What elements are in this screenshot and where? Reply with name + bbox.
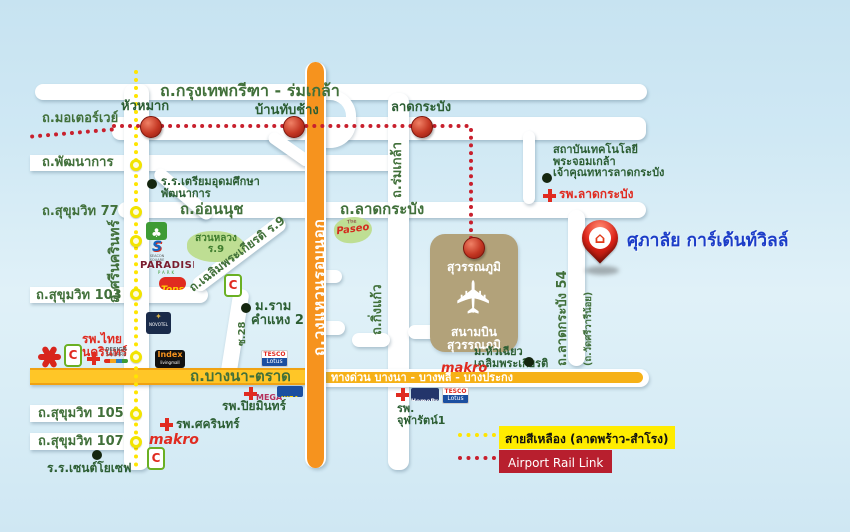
arl-route-west (30, 127, 114, 138)
tesco-lotus-logo: TESCO Lotus (261, 350, 288, 367)
road-label-srinakarin: ถ.ศรีนครินทร์ (108, 208, 123, 303)
ikea-logo: IKEA (277, 386, 303, 397)
kmitl-dot (542, 173, 552, 183)
paseo-logo: The Paseo (333, 217, 373, 237)
chularat-line1: รพ. (397, 403, 445, 415)
project-title: ศุภาลัย การ์เด้นท์วิลล์ (627, 232, 788, 250)
station-label-ban-thap-chang: บ้านทับช้าง (255, 104, 319, 118)
yellow-line-stop (130, 408, 142, 420)
novotel-logo: ✦ NOVOTEL (146, 312, 171, 334)
paradise-sub: PARK (140, 271, 194, 275)
road-label-motorway: ถ.มอเตอร์เวย์ (42, 112, 118, 126)
road-label-lat-krabang: ถ.ลาดกระบัง (340, 202, 424, 218)
hospital-cross-icon (87, 352, 100, 365)
road-outer-ring: ถ.วงแหวนรอบนอก (305, 62, 326, 468)
road-label-soi-28: ซ.28 (238, 312, 249, 346)
triam-udom-dot (147, 179, 157, 189)
yellow-line-stop (130, 206, 142, 218)
location-map: สวนหลวง ร.9 The Paseo ถ.วงแหวนรอบนอก สุว… (0, 0, 850, 532)
yellow-line-stop (130, 288, 142, 300)
design-square-logo: DESIGN SQUARE (101, 347, 131, 365)
tree-mall-logo: ♣ (146, 222, 167, 240)
kmitl-line1: สถาบันเทคโนโลยี (553, 144, 664, 156)
paseo-mall-area: The Paseo (332, 214, 373, 245)
legend-yellow-line-label: สายสีเหลือง (ลาดพร้าว-สำโรง) (505, 432, 669, 446)
road-label-wat-sri-wari-noi: (ถ.วัดศรีวารีน้อย) (584, 270, 594, 366)
legend-yellow-line: สายสีเหลือง (ลาดพร้าว-สำโรง) (499, 426, 675, 449)
chularat-line2: จุฬารัตน์1 (397, 415, 445, 427)
yellow-line-stop (130, 436, 142, 448)
road-label-king-kaew: ถ.กิ่งแก้ว (371, 247, 385, 335)
chularat-hospital-cross-icon (396, 388, 409, 401)
lat-krabang-hospital-cross-icon (543, 189, 556, 202)
road-stub-c (352, 333, 390, 347)
ramkhamhaeng2-line1: ม.ราม (255, 300, 304, 314)
thai-nakarin-line1: รพ.ไทย (82, 333, 127, 346)
yellow-line-stop (130, 351, 142, 363)
suanluang-label: สวนหลวง (187, 234, 245, 245)
bigc-logo: C (147, 447, 165, 470)
homepro-logo: HomePro (411, 388, 439, 401)
ramkhamhaeng2-dot (241, 303, 251, 313)
bigc-logo: C (64, 344, 82, 367)
ramkhamhaeng2-line2: คำแหง 2 (251, 314, 304, 328)
station-lat-krabang (411, 116, 433, 138)
st-joseph-dot (92, 450, 102, 460)
road-label-sukhumvit-107: ถ.สุขุมวิท 107 (38, 435, 124, 449)
tesco-label: TESCO (443, 388, 468, 395)
road-label-on-nut: ถ.อ่อนนุช (180, 202, 244, 218)
yellow-line-stop (130, 159, 142, 171)
road-label-outer-ring: ถ.วงแหวนรอบนอก (307, 167, 324, 407)
seacon-square-logo: S SEACON SQUARE (145, 240, 169, 261)
hua-chiew-line1: ม.หัวเฉียว (474, 346, 548, 358)
tesco-label: TESCO (262, 351, 287, 358)
design-line2: SQUARE (101, 353, 131, 358)
kmitl-line3: เจ้าคุณทหารลาดกระบัง (553, 167, 664, 179)
station-hua-mak (140, 116, 162, 138)
st-joseph-label: ร.ร.เซนต์โยเซฟ (47, 462, 131, 475)
road-motorway (112, 117, 646, 140)
road-label-bangna-trad: ถ.บางนา-ตราด (190, 369, 291, 385)
flower-logo (38, 345, 61, 368)
legend-arl-sample (458, 456, 496, 460)
makro-logo: makro (149, 429, 199, 448)
tops-logo: Tops (159, 277, 186, 290)
chularat-hospital-label: รพ. จุฬารัตน์1 (397, 403, 445, 426)
yellow-line-stop (130, 235, 142, 247)
road-label-krungthep-kritha: ถ.กรุงเทพกรีฑา - ร่มเกล้า (160, 83, 340, 100)
road-label-lat-krabang-54: ถ.ลาดกระบัง 54 (556, 244, 570, 366)
seacon-s: S (145, 240, 169, 254)
novotel-label: NOVOTEL (146, 322, 171, 327)
station-label-hua-mak: หัวหมาก (121, 100, 169, 114)
legend-yellow-line-sample (458, 433, 496, 437)
station-label-lat-krabang: ลาดกระบัง (391, 101, 451, 115)
station-ban-thap-chang (283, 116, 305, 138)
legend-arl-label: Airport Rail Link (508, 456, 603, 470)
house-icon: ⌂ (589, 227, 611, 249)
station-suvarnabhumi (463, 237, 485, 259)
piyamin-hospital-label: รพ.ปิยมินทร์ (222, 400, 286, 413)
triam-udom-line1: ร.ร.เตรียมอุดมศึกษา (161, 176, 260, 188)
legend-arl: Airport Rail Link (499, 450, 612, 473)
triam-udom-line2: พัฒนาการ (161, 188, 260, 200)
lotus-label: Lotus (443, 395, 468, 403)
road-label-sukhumvit-105: ถ.สุขุมวิท 105 (38, 407, 124, 421)
makro-logo: makro (441, 357, 487, 376)
tesco-lotus-logo: TESCO Lotus (442, 387, 469, 404)
pin-shadow (585, 266, 619, 275)
triam-udom-label: ร.ร.เตรียมอุดมศึกษา พัฒนาการ (161, 176, 260, 199)
novotel-star-icon: ✦ (146, 312, 171, 322)
arl-route-to-airport (469, 128, 473, 240)
lotus-label: Lotus (262, 358, 287, 366)
ramkhamhaeng2-label: ม.ราม คำแหง 2 (255, 300, 304, 327)
index-label: Index (155, 350, 185, 360)
kmitl-label: สถาบันเทคโนโลยี พระจอมเกล้า เจ้าคุณทหารล… (553, 144, 664, 179)
lat-krabang-hospital-label: รพ.ลาดกระบัง (559, 188, 633, 201)
road-label-pattanakan: ถ.พัฒนาการ (42, 156, 113, 170)
design-color-stripe (104, 359, 128, 363)
hua-chiew-dot (524, 357, 534, 367)
bigc-logo: C (224, 274, 242, 297)
paradise-park-logo: PARADISE PARK (140, 260, 194, 276)
index-sub: livingmall (155, 360, 185, 365)
road-connector-east (523, 131, 535, 204)
index-living-mall-logo: Index livingmall (155, 350, 185, 368)
road-label-rom-klao: ถ.ร่มเกล้า (391, 128, 405, 198)
